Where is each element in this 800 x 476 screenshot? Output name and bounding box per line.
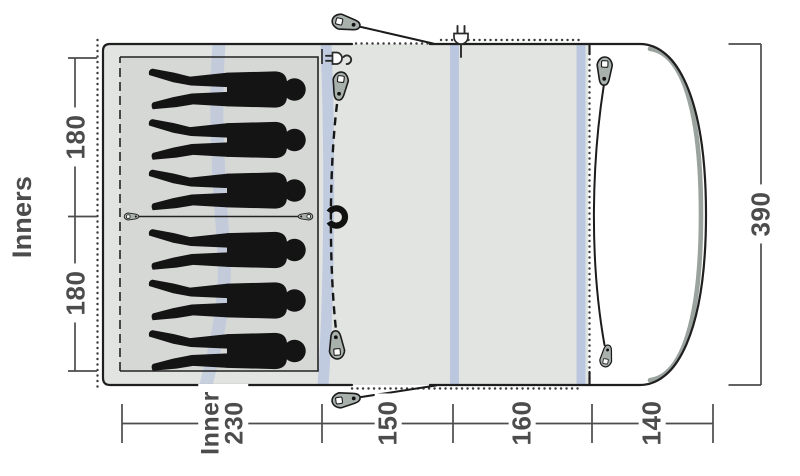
- depth-dimension: 390: [748, 185, 775, 244]
- zipper-pull-icon: [599, 344, 614, 368]
- tent-peg-icon: [596, 57, 612, 86]
- tent-peg-icon: [331, 12, 362, 33]
- front-pole-curve: [650, 49, 701, 380]
- front-section-dimension: 140: [639, 394, 666, 453]
- tent-peg-icon: [331, 390, 361, 409]
- divider-toggle-icon: [298, 213, 313, 220]
- inner-cabin-1-dimension: 180: [63, 108, 90, 167]
- front-canopy: [588, 44, 706, 385]
- divider-toggle-icon: [124, 213, 139, 220]
- tent-floorplan-diagram: Inners 180 180 Inner 230 150 160 140 390: [0, 0, 800, 476]
- front-door-zip-line: [594, 84, 605, 345]
- living-section-dimension: 160: [509, 394, 536, 453]
- inners-label: Inners: [9, 169, 37, 265]
- inner-width-dimension: Inner 230: [198, 384, 248, 462]
- mid-section-dimension: 150: [375, 394, 402, 453]
- inner-cabin-2-dimension: 180: [63, 264, 90, 323]
- inner-width-value: 230: [220, 401, 248, 444]
